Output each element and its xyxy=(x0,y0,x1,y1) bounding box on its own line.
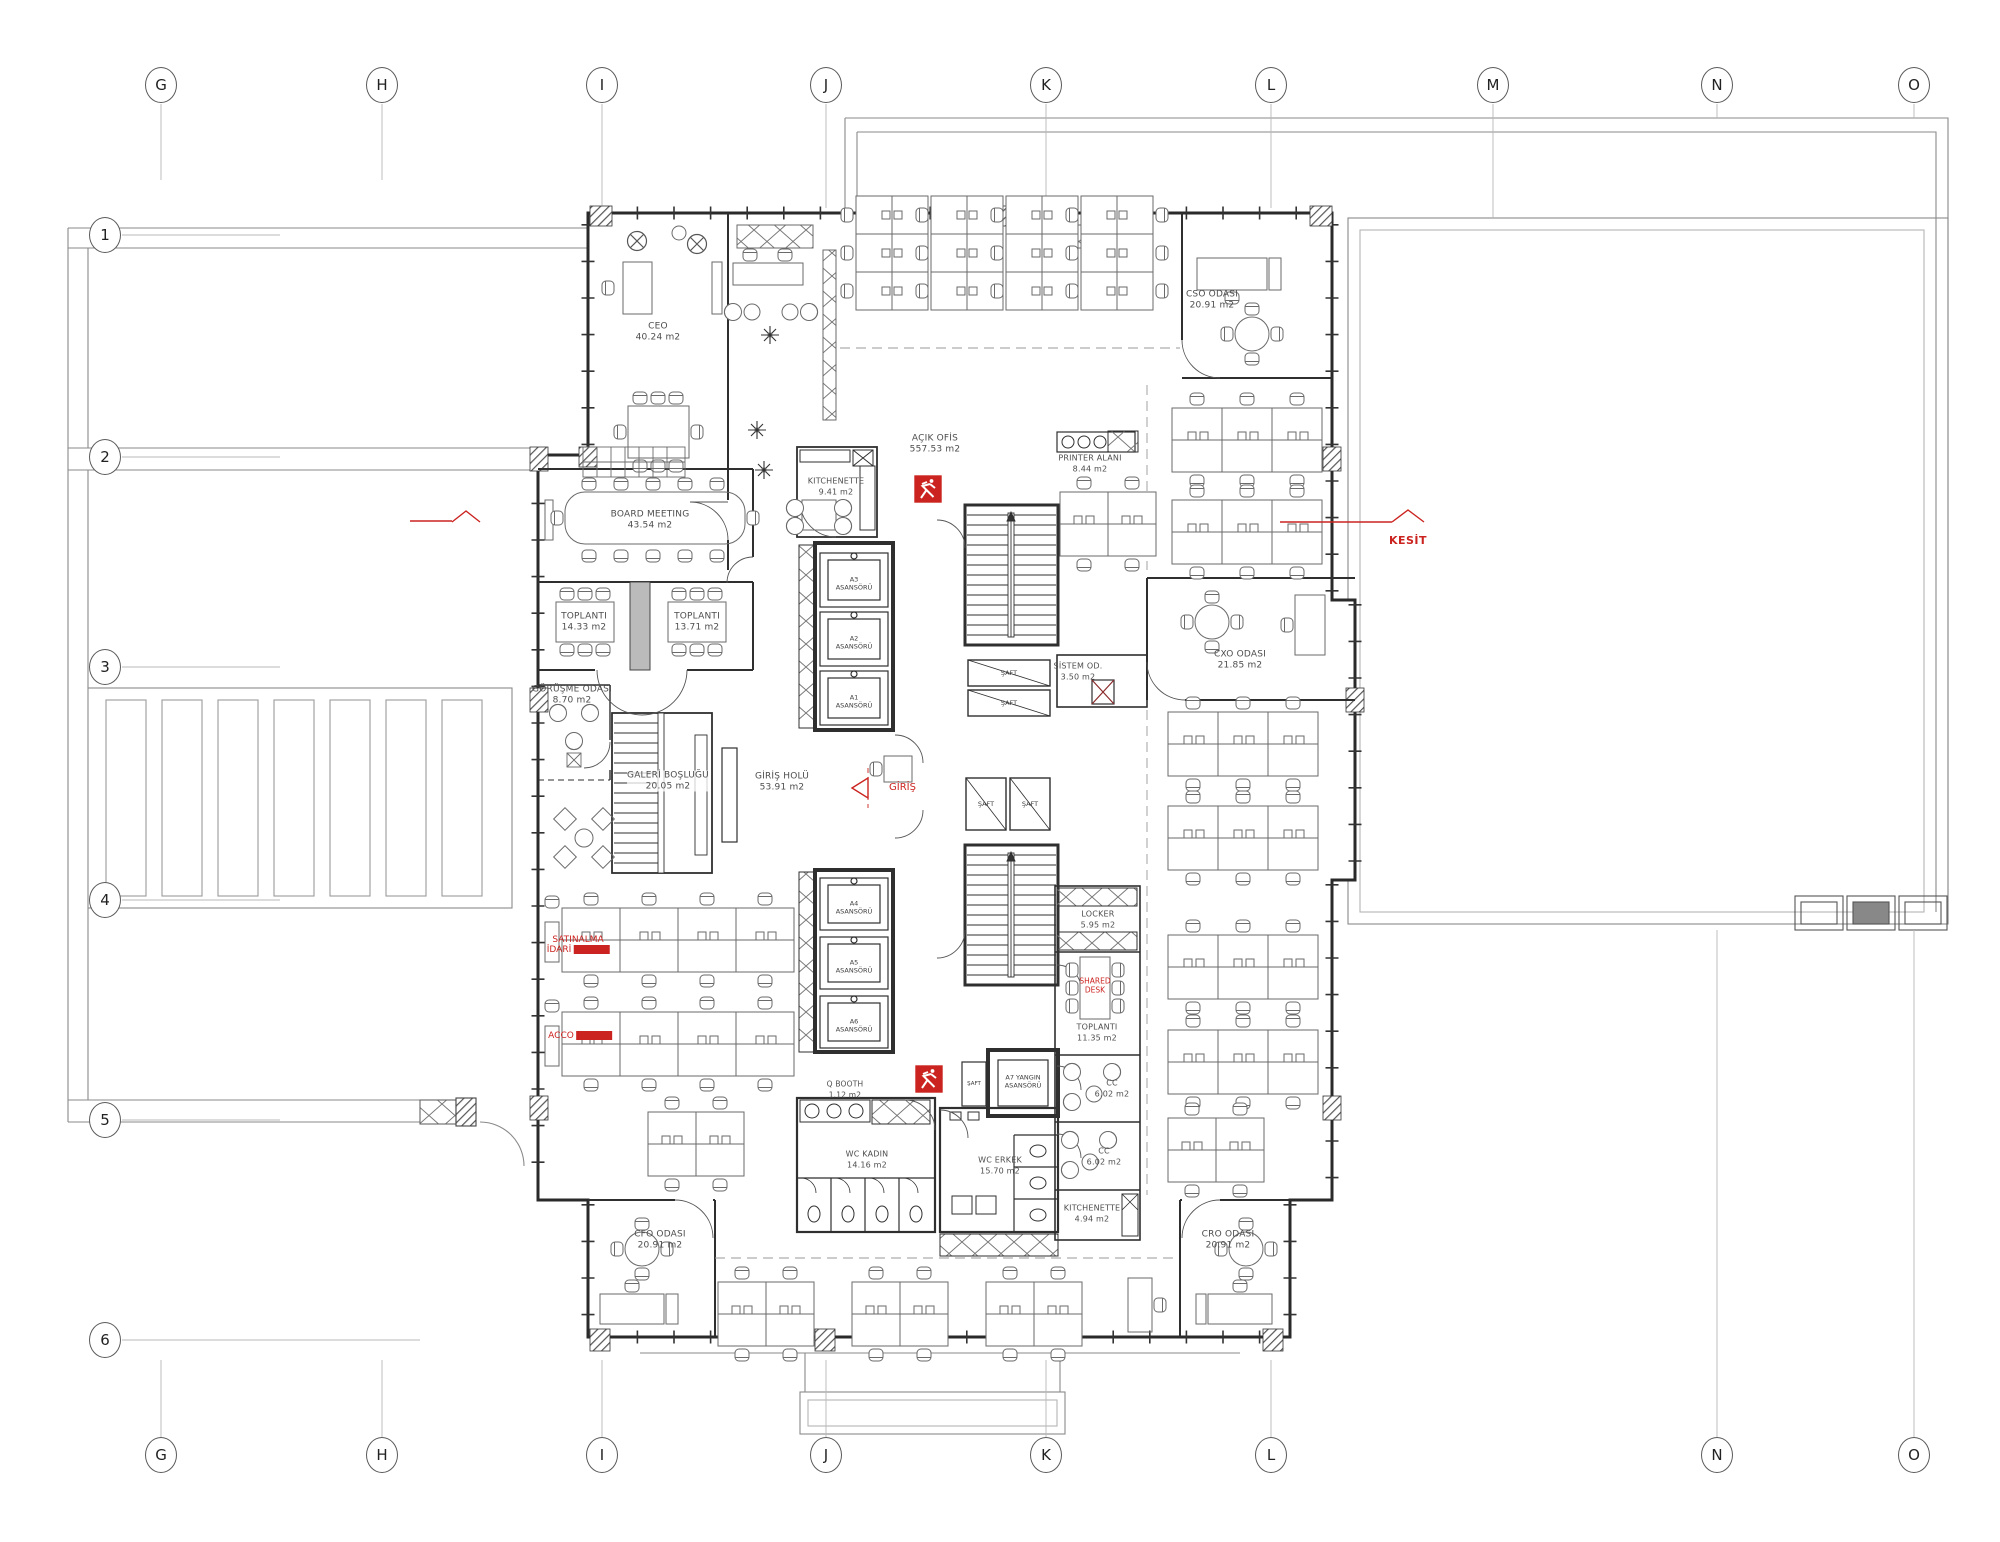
room-label-printer: PRINTER ALANI8.44 m2 xyxy=(1058,454,1121,475)
grid-col-g-bottom: G xyxy=(145,1437,177,1473)
shaft-label: ŞAFT xyxy=(1001,699,1017,707)
grid-col-label: N xyxy=(1711,1446,1722,1464)
grid-col-label: L xyxy=(1267,76,1275,94)
grid-col-label: H xyxy=(376,1446,387,1464)
grid-row-label: 4 xyxy=(100,891,110,909)
shared-desk-label: SHAREDDESK xyxy=(1079,978,1110,995)
section-label-kesit: KESİT xyxy=(1389,536,1427,546)
grid-col-o: O xyxy=(1898,67,1930,103)
grid-col-i-bottom: I xyxy=(586,1437,618,1473)
dept-label-satinalma: SATINALMA İDARİ xyxy=(547,935,610,955)
elevator-label: A4ASANSÖRÜ xyxy=(836,901,873,916)
grid-col-label: G xyxy=(155,1446,167,1464)
grid-row-6: 6 xyxy=(89,1322,121,1358)
grid-col-label: N xyxy=(1711,76,1722,94)
grid-row-label: 1 xyxy=(100,226,110,244)
grid-col-label: O xyxy=(1908,76,1920,94)
shaft-label: ŞAFT xyxy=(978,800,994,808)
entrance-label: GİRİŞ xyxy=(889,783,916,793)
grid-col-label: K xyxy=(1041,76,1051,94)
grid-col-label: K xyxy=(1041,1446,1051,1464)
elevator-label: A5ASANSÖRÜ xyxy=(836,960,873,975)
section-marker-left-icon xyxy=(410,511,480,522)
grid-col-label: L xyxy=(1267,1446,1275,1464)
room-label-wc-kadin: WC KADIN14.16 m2 xyxy=(846,1150,889,1171)
shaft-label: ŞAFT xyxy=(967,1081,981,1087)
grid-col-label: O xyxy=(1908,1446,1920,1464)
grid-col-n: N xyxy=(1701,67,1733,103)
redacted-box xyxy=(573,945,609,954)
grid-col-l-bottom: L xyxy=(1255,1437,1287,1473)
grid-col-label: J xyxy=(824,1446,828,1464)
grid-col-n-bottom: N xyxy=(1701,1437,1733,1473)
room-label-cfo: CFO ODASI20.91 m2 xyxy=(634,1230,686,1251)
shaft-label: ŞAFT xyxy=(1001,669,1017,677)
grid-row-label: 5 xyxy=(100,1111,110,1129)
grid-col-k-bottom: K xyxy=(1030,1437,1062,1473)
room-label-toplanti1: TOPLANTI14.33 m2 xyxy=(561,612,607,633)
elevator-label: A3ASANSÖRÜ xyxy=(836,577,873,592)
room-label-ceo: CEO40.24 m2 xyxy=(636,322,681,343)
redacted-box xyxy=(576,1031,612,1040)
dept-label-accounting: ACCO xyxy=(548,1031,612,1041)
room-label-kitchenette2: KITCHENETTE4.94 m2 xyxy=(1064,1204,1121,1225)
room-label-toplanti3: TOPLANTI11.35 m2 xyxy=(1077,1023,1118,1044)
elevator-label: A1ASANSÖRÜ xyxy=(836,695,873,710)
room-label-giris-holu: GİRİŞ HOLÜ53.91 m2 xyxy=(755,772,809,793)
room-label-toplanti2: TOPLANTI13.71 m2 xyxy=(674,612,720,633)
room-label-gorusme: GÖRÜŞME ODASI8.70 m2 xyxy=(532,685,612,706)
fire-elevator-label: A7 YANGINASANSÖRÜ xyxy=(1005,1075,1042,1090)
floor-plan-canvas: G H I J K L M N O G H I J K L N O 1 2 3 … xyxy=(0,0,2000,1542)
room-label-cc2: CC6.02 m2 xyxy=(1087,1147,1122,1168)
grid-row-1: 1 xyxy=(89,217,121,253)
grid-col-g: G xyxy=(145,67,177,103)
grid-row-2: 2 xyxy=(89,439,121,475)
grid-col-o-bottom: O xyxy=(1898,1437,1930,1473)
grid-col-l: L xyxy=(1255,67,1287,103)
grid-col-h: H xyxy=(366,67,398,103)
grid-row-3: 3 xyxy=(89,649,121,685)
grid-row-4: 4 xyxy=(89,882,121,918)
room-label-cc1: CC6.02 m2 xyxy=(1095,1079,1130,1100)
grid-row-label: 2 xyxy=(100,448,110,466)
grid-row-label: 3 xyxy=(100,658,110,676)
fire-exit-icon xyxy=(915,476,941,502)
grid-col-label: H xyxy=(376,76,387,94)
room-label-cso: CSO ODASI20.91 m2 xyxy=(1186,290,1238,311)
grid-col-label: G xyxy=(155,76,167,94)
room-label-sistem: SİSTEM OD.3.50 m2 xyxy=(1054,662,1103,683)
grid-col-label: M xyxy=(1487,76,1500,94)
elevator-label: A6ASANSÖRÜ xyxy=(836,1019,873,1034)
room-label-wc-erkek: WC ERKEK15.70 m2 xyxy=(978,1156,1022,1177)
grid-col-i: I xyxy=(586,67,618,103)
grid-col-label: I xyxy=(600,76,604,94)
grid-col-j-bottom: J xyxy=(810,1437,842,1473)
grid-col-k: K xyxy=(1030,67,1062,103)
grid-col-label: J xyxy=(824,76,828,94)
grid-col-h-bottom: H xyxy=(366,1437,398,1473)
shaft-label: ŞAFT xyxy=(1022,800,1038,808)
grid-row-label: 6 xyxy=(100,1331,110,1349)
grid-row-5: 5 xyxy=(89,1102,121,1138)
plan-drawing xyxy=(0,0,2000,1542)
room-label-galeri: GALERİ BOŞLUĞU20.05 m2 xyxy=(627,771,709,792)
elevator-label: A2ASANSÖRÜ xyxy=(836,636,873,651)
grid-col-j: J xyxy=(810,67,842,103)
room-label-kitchenette1: KITCHENETTE9.41 m2 xyxy=(808,477,865,498)
grid-col-label: I xyxy=(600,1446,604,1464)
grid-col-m: M xyxy=(1477,67,1509,103)
room-label-board: BOARD MEETING43.54 m2 xyxy=(611,510,690,531)
room-label-cxo: CXO ODASI21.85 m2 xyxy=(1214,650,1266,671)
room-label-qbooth: Q BOOTH1.12 m2 xyxy=(827,1080,864,1101)
room-label-acik-ofis: AÇIK OFİS557.53 m2 xyxy=(910,434,961,455)
room-label-cro: CRO ODASI20.91 m2 xyxy=(1202,1230,1255,1251)
fire-exit-icon xyxy=(916,1066,942,1092)
room-label-locker: LOCKER5.95 m2 xyxy=(1081,910,1116,931)
